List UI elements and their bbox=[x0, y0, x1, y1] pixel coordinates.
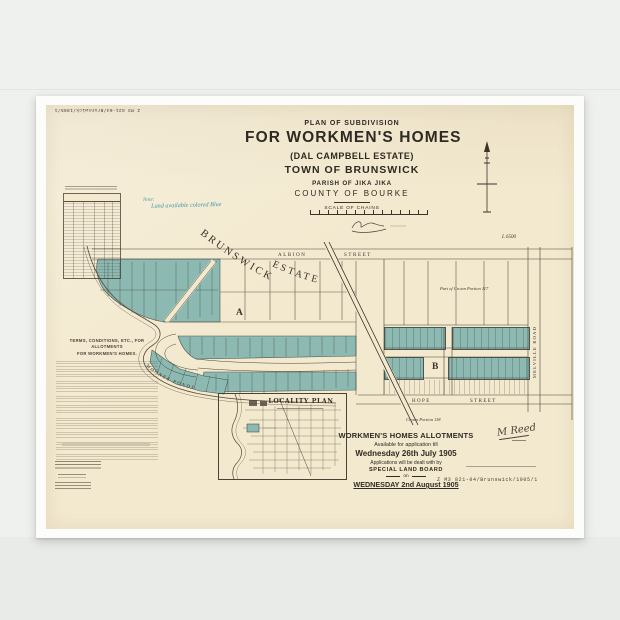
office-stamp-lines bbox=[58, 474, 86, 479]
terms-paragraph-lines bbox=[56, 396, 158, 403]
signature-title-lines bbox=[512, 440, 526, 443]
title-block: PLAN OF SUBDIVISION FOR WORKMEN'S HOMES … bbox=[245, 120, 459, 211]
notice-on: on bbox=[403, 474, 408, 479]
divider-dash bbox=[412, 476, 426, 477]
albion-street-label-1: ALBION bbox=[278, 253, 307, 258]
county-subtitle: COUNTY OF BOURKE bbox=[245, 189, 459, 198]
catalog-stamp-top: Z M3 821-04/Brunswick/1905/1 bbox=[60, 107, 140, 112]
surveyor-signature-mark bbox=[352, 222, 406, 233]
schedule-table-caption-lines bbox=[65, 186, 117, 191]
catalog-stamp-bottom: Z M3 821-04/Brunswick/1905/1 bbox=[437, 477, 577, 483]
terms-paragraph-lines bbox=[56, 432, 158, 439]
section-b-label: B bbox=[432, 362, 439, 372]
terms-paragraph-lines bbox=[56, 454, 158, 460]
schedule-table bbox=[63, 193, 121, 279]
parish-subtitle: PARISH OF JIKA JIKA bbox=[245, 180, 459, 187]
approval-fine-print-lines bbox=[466, 466, 536, 469]
terms-paragraph-lines bbox=[56, 381, 158, 393]
subdivision-map: BRUNSWICK ESTATE MOONEE PONDS ALBION STR… bbox=[0, 0, 620, 620]
inset-street-grid bbox=[243, 402, 341, 474]
estate-arc-label-2: ESTATE bbox=[271, 259, 322, 286]
scale-bar bbox=[310, 210, 428, 215]
town-subtitle: TOWN OF BRUNSWICK bbox=[245, 164, 459, 176]
page-title: FOR WORKMEN'S HOMES bbox=[245, 129, 459, 147]
plan-of-subdivision: PLAN OF SUBDIVISION bbox=[245, 120, 459, 127]
notice-date-1: Wednesday 26th July 1905 bbox=[336, 449, 476, 458]
title-rule bbox=[334, 202, 370, 203]
parcel-ne-label: L 6500 bbox=[501, 235, 516, 240]
divider-dash bbox=[386, 476, 400, 477]
section-a-label: A bbox=[236, 308, 243, 318]
inset-railway bbox=[279, 398, 311, 476]
locality-plan-title: LOCALITY PLAN bbox=[259, 398, 343, 405]
crown-portion-ne-label: Part of Crown Portion 117 bbox=[439, 286, 489, 291]
locality-plan-drawing bbox=[219, 394, 346, 479]
schedule-table-header bbox=[63, 193, 121, 202]
crown-portion-s-label: Crown Portion 118 bbox=[406, 417, 441, 422]
locality-plan-inset: LOCALITY PLAN bbox=[218, 393, 347, 480]
terms-block: TERMS, CONDITIONS, ETC., FOR ALLOTMENTS … bbox=[56, 338, 158, 460]
terms-heading-1: TERMS, CONDITIONS, ETC., FOR ALLOTMENTS bbox=[56, 338, 158, 351]
melville-road-label: MELVILLE ROAD bbox=[532, 326, 537, 378]
office-stamp-lines bbox=[55, 461, 101, 470]
notice-board: SPECIAL LAND BOARD bbox=[336, 467, 476, 473]
inset-estate-location bbox=[247, 424, 259, 432]
north-arrow-icon bbox=[477, 141, 497, 212]
office-stamp-lines bbox=[55, 482, 91, 489]
albion-street-label-2: STREET bbox=[344, 253, 372, 258]
hope-street-label-2: STREET bbox=[470, 399, 497, 404]
terms-paragraph-lines bbox=[56, 361, 158, 367]
terms-final-clause-lines bbox=[62, 443, 150, 447]
estate-subtitle: (DAL CAMPBELL ESTATE) bbox=[245, 151, 459, 161]
hope-street-label-1: HOPE bbox=[412, 399, 431, 404]
notice-available: Available for application till bbox=[336, 442, 476, 448]
terms-paragraph-lines bbox=[56, 405, 158, 415]
screenshot-root: { "catalog": { "code": "Z M3 821-04/Brun… bbox=[0, 0, 620, 620]
notice-heading: WORKMEN'S HOMES ALLOTMENTS bbox=[336, 431, 476, 440]
terms-heading-2: FOR WORKMEN'S HOMES. bbox=[56, 351, 158, 357]
availability-note: Note: Land available colored Blue bbox=[143, 195, 222, 210]
terms-paragraph-lines bbox=[56, 369, 158, 378]
locality-plan-subtitle-line bbox=[277, 408, 323, 409]
notice-dealt: Applications will be dealt with by bbox=[336, 460, 476, 466]
terms-paragraph-lines bbox=[56, 418, 158, 430]
